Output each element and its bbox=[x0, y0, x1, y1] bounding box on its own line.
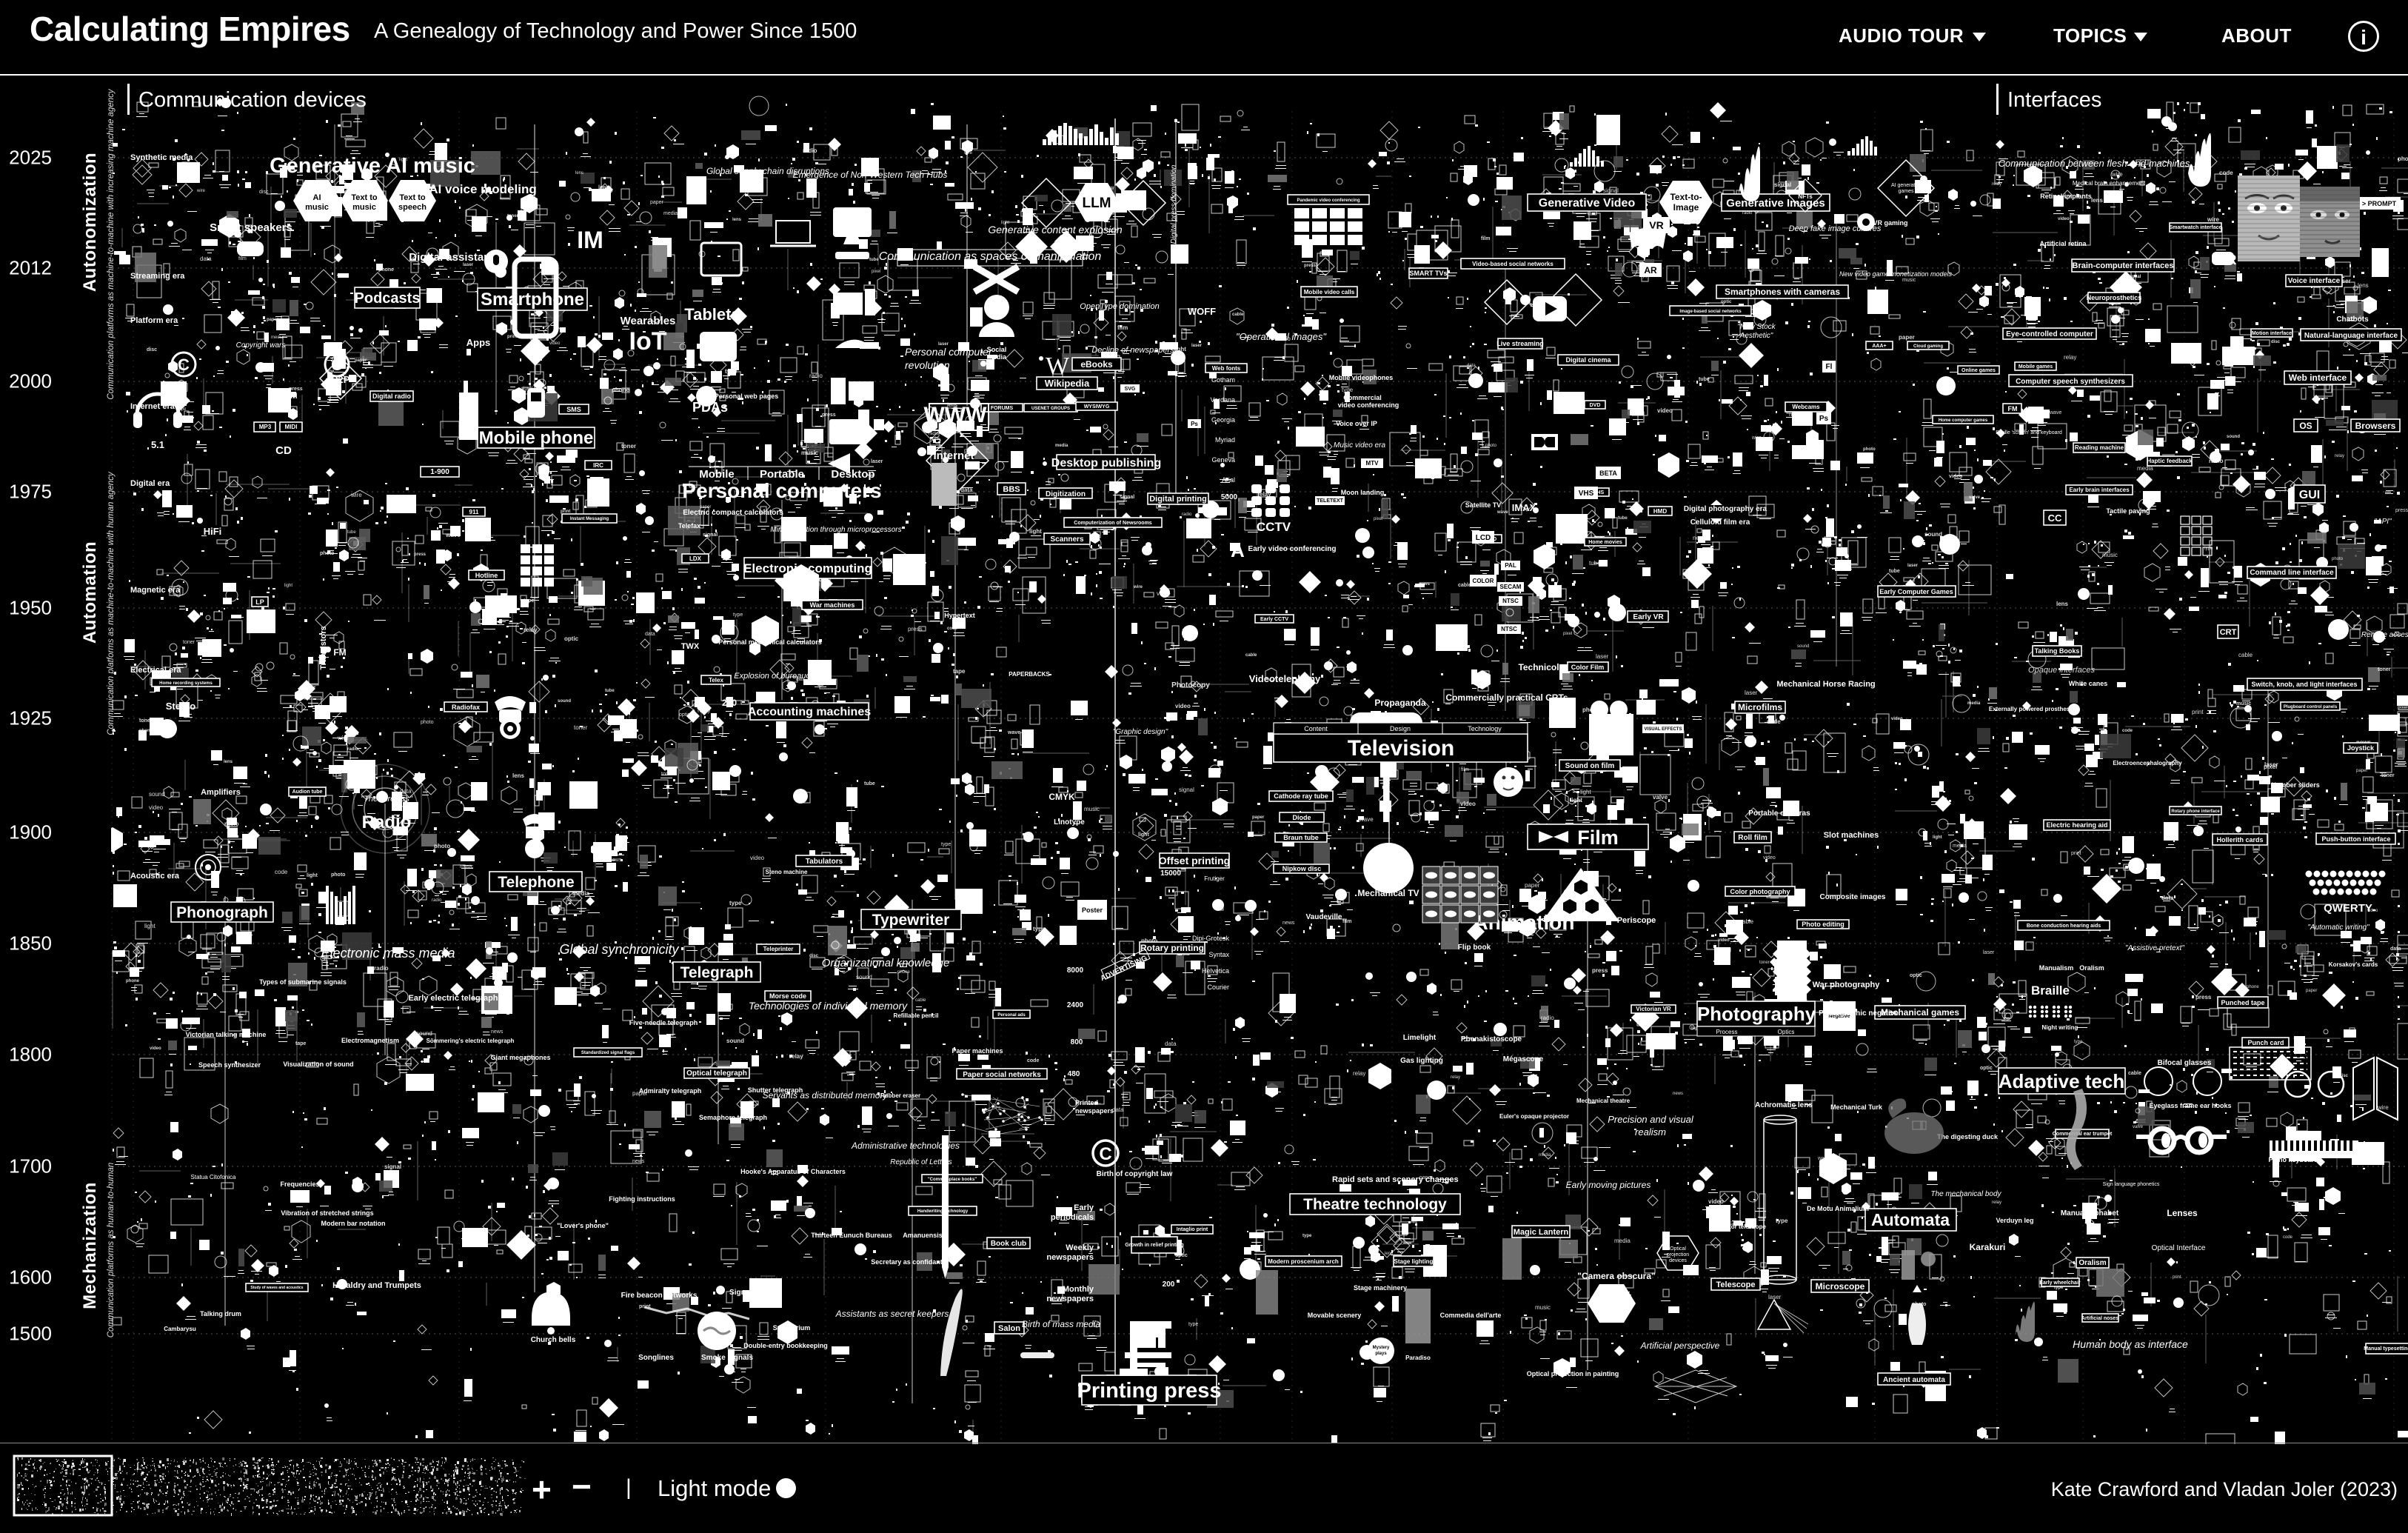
svg-text:Flip book: Flip book bbox=[1458, 943, 1491, 952]
svg-text:code: code bbox=[2219, 170, 2233, 176]
svg-text:paper: paper bbox=[355, 358, 367, 363]
svg-text:Mobile videophones: Mobile videophones bbox=[1329, 374, 1394, 381]
svg-text:Photo editing: Photo editing bbox=[1802, 921, 1845, 928]
svg-text:Personal ads: Personal ads bbox=[997, 1013, 1026, 1018]
svg-text:lens: lens bbox=[575, 171, 583, 176]
svg-text:tape: tape bbox=[295, 1041, 307, 1046]
svg-text:Optical: Optical bbox=[1670, 1246, 1686, 1252]
svg-text:Typewriter: Typewriter bbox=[872, 912, 950, 929]
svg-text:toner: toner bbox=[507, 214, 519, 218]
svg-text:Technicolor: Technicolor bbox=[1518, 662, 1568, 672]
svg-text:laser: laser bbox=[1596, 653, 1609, 660]
svg-text:Copyright wars: Copyright wars bbox=[236, 341, 286, 350]
svg-text:Theatre technology: Theatre technology bbox=[1303, 1196, 1447, 1213]
svg-text:Videotelephony: Videotelephony bbox=[1249, 673, 1321, 684]
svg-text:VHS: VHS bbox=[1579, 490, 1594, 498]
svg-text:Amplifiers: Amplifiers bbox=[201, 788, 241, 797]
svg-text:NFTs: NFTs bbox=[1798, 193, 1813, 200]
svg-text:devices: devices bbox=[1669, 1258, 1687, 1263]
svg-text:Personal computers: Personal computers bbox=[682, 479, 881, 502]
svg-text:Vaudeville: Vaudeville bbox=[1306, 913, 1342, 921]
svg-text:Heraldry and Trumpets: Heraldry and Trumpets bbox=[332, 1281, 421, 1290]
svg-text:911: 911 bbox=[469, 509, 479, 515]
svg-text:paper: paper bbox=[2356, 769, 2367, 773]
svg-text:Generative content explosion: Generative content explosion bbox=[988, 224, 1123, 236]
svg-text:Scanners: Scanners bbox=[1050, 535, 1083, 544]
svg-text:optic: optic bbox=[1721, 300, 1732, 304]
svg-text:press: press bbox=[2395, 508, 2408, 513]
svg-text:"Commonplace books": "Commonplace books" bbox=[928, 1178, 977, 1182]
svg-text:Manualism: Manualism bbox=[2039, 964, 2074, 972]
svg-text:phone: phone bbox=[2398, 156, 2408, 162]
svg-text:type: type bbox=[941, 842, 951, 847]
svg-text:music: music bbox=[801, 450, 819, 456]
svg-text:video: video bbox=[1657, 407, 1673, 414]
svg-text:"Lover's phone": "Lover's phone" bbox=[557, 1222, 609, 1229]
svg-text:cable: cable bbox=[2238, 652, 2253, 658]
svg-text:type: type bbox=[2074, 1040, 2083, 1044]
svg-text:Semaphore telegraph: Semaphore telegraph bbox=[699, 1114, 767, 1121]
svg-text:PAPERBACKS: PAPERBACKS bbox=[1009, 671, 1050, 678]
svg-text:Early electric telegraph: Early electric telegraph bbox=[408, 994, 498, 1003]
svg-text:paper: paper bbox=[1525, 882, 1540, 889]
svg-text:video: video bbox=[2058, 217, 2070, 221]
svg-text:valve: valve bbox=[2133, 1125, 2144, 1129]
svg-text:Web fonts: Web fonts bbox=[1212, 365, 1241, 372]
svg-text:laser: laser bbox=[871, 459, 883, 464]
svg-text:sound: sound bbox=[558, 699, 571, 704]
svg-text:toner: toner bbox=[2378, 667, 2391, 672]
svg-text:5000: 5000 bbox=[1221, 493, 1238, 501]
svg-text:periodicals: periodicals bbox=[1051, 1213, 1094, 1222]
svg-text:radio: radio bbox=[1541, 1015, 1554, 1021]
svg-text:pixel: pixel bbox=[2398, 706, 2408, 710]
svg-text:Digital press domination: Digital press domination bbox=[1170, 164, 1178, 244]
svg-text:DVD: DVD bbox=[1590, 403, 1601, 408]
svg-text:laser: laser bbox=[1983, 950, 1995, 955]
svg-text:Night writing: Night writing bbox=[2042, 1024, 2078, 1031]
svg-text:Hooke's Apparatus of Character: Hooke's Apparatus of Characters bbox=[740, 1168, 846, 1175]
svg-text:Early video conferencing: Early video conferencing bbox=[1248, 545, 1337, 553]
svg-text:Personal computer: Personal computer bbox=[905, 346, 993, 358]
svg-text:Visualization of sound: Visualization of sound bbox=[283, 1061, 353, 1068]
svg-text:Organizational knowledge: Organizational knowledge bbox=[822, 957, 950, 969]
svg-text:Oralism: Oralism bbox=[2078, 1259, 2106, 1267]
svg-text:data: data bbox=[1165, 1041, 1177, 1047]
svg-text:Standardized signal flags: Standardized signal flags bbox=[581, 1051, 635, 1055]
svg-text:MTV: MTV bbox=[1366, 460, 1379, 467]
svg-text:Medical brain enhancement: Medical brain enhancement bbox=[2073, 180, 2146, 187]
svg-text:sound: sound bbox=[416, 1030, 432, 1037]
svg-text:Smart speakers: Smart speakers bbox=[210, 221, 292, 234]
svg-text:A: A bbox=[1231, 539, 1245, 561]
svg-text:phone: phone bbox=[897, 970, 910, 975]
svg-text:Five-needle telegraph: Five-needle telegraph bbox=[629, 1019, 698, 1026]
svg-text:Generative Video: Generative Video bbox=[1539, 197, 1636, 210]
svg-text:Braille 'screen' and keyboard: Braille 'screen' and keyboard bbox=[1996, 430, 2062, 435]
svg-text:photo: photo bbox=[1485, 444, 1497, 448]
svg-text:"Camera obscura": "Camera obscura" bbox=[1577, 1271, 1655, 1281]
svg-text:radio: radio bbox=[224, 821, 239, 827]
svg-text:news: news bbox=[1282, 921, 1295, 926]
svg-text:PDAs: PDAs bbox=[692, 400, 728, 415]
svg-text:CC: CC bbox=[2048, 512, 2062, 524]
svg-text:news: news bbox=[1673, 1092, 1683, 1096]
svg-text:video: video bbox=[1891, 717, 1903, 721]
svg-text:Portable: Portable bbox=[760, 468, 804, 481]
svg-text:Chatbots: Chatbots bbox=[2336, 315, 2369, 324]
svg-text:press: press bbox=[908, 626, 923, 632]
svg-text:Ps: Ps bbox=[1191, 421, 1198, 427]
svg-text:media: media bbox=[1539, 1153, 1551, 1158]
svg-text:Intaglio print: Intaglio print bbox=[1177, 1227, 1208, 1232]
svg-text:Double-entry bookkeeping: Double-entry bookkeeping bbox=[743, 1342, 828, 1349]
svg-text:Radiofax: Radiofax bbox=[452, 704, 480, 711]
svg-text:Eyeglass frame ear hooks: Eyeglass frame ear hooks bbox=[2149, 1102, 2231, 1109]
svg-text:Emergence of Non-Western Tech: Emergence of Non-Western Tech Hubs bbox=[793, 170, 948, 180]
svg-text:Acoustic era: Acoustic era bbox=[130, 872, 180, 881]
svg-text:VR gaming: VR gaming bbox=[1873, 219, 1907, 227]
svg-text:Commercially practical CRTs: Commercially practical CRTs bbox=[1445, 692, 1568, 703]
svg-text:Arial: Arial bbox=[1222, 476, 1235, 484]
svg-text:Magnetic era: Magnetic era bbox=[130, 586, 181, 595]
svg-text:video: video bbox=[1175, 703, 1191, 709]
svg-text:Synthetic media: Synthetic media bbox=[130, 153, 193, 162]
svg-text:FM: FM bbox=[2008, 405, 2018, 413]
svg-text:Personal mechanical calculator: Personal mechanical calculators bbox=[718, 638, 822, 646]
svg-text:Optical Interface: Optical Interface bbox=[2152, 1244, 2206, 1252]
svg-text:Euler's opaque projector: Euler's opaque projector bbox=[1499, 1113, 1569, 1120]
svg-text:Internet: Internet bbox=[933, 450, 974, 462]
svg-text:light: light bbox=[307, 873, 318, 878]
svg-text:data: data bbox=[2390, 946, 2401, 952]
svg-text:Mobile games: Mobile games bbox=[2019, 364, 2053, 370]
svg-text:signal: signal bbox=[2128, 275, 2141, 279]
svg-text:Salon: Salon bbox=[998, 1324, 1020, 1333]
svg-text:Printed: Printed bbox=[1075, 1099, 1098, 1106]
svg-text:Helvetica: Helvetica bbox=[1202, 967, 1229, 975]
svg-text:Plugboard control panels: Plugboard control panels bbox=[2284, 705, 2338, 709]
svg-text:CMYK: CMYK bbox=[1049, 792, 1075, 802]
svg-text:radio: radio bbox=[929, 432, 939, 436]
svg-text:Modern bar notation: Modern bar notation bbox=[321, 1220, 386, 1227]
svg-text:Process: Process bbox=[1716, 1029, 1738, 1035]
svg-text:wire: wire bbox=[2207, 216, 2220, 223]
svg-text:Transistors: Transistors bbox=[319, 626, 328, 669]
svg-text:Satellite TV: Satellite TV bbox=[1465, 501, 1502, 509]
svg-text:signal: signal bbox=[1120, 495, 1134, 500]
svg-text:radio: radio bbox=[1742, 211, 1753, 216]
svg-text:cable: cable bbox=[1245, 653, 1257, 658]
svg-text:media: media bbox=[1055, 444, 1068, 448]
svg-text:code: code bbox=[2283, 1235, 2293, 1240]
svg-text:Braun tube: Braun tube bbox=[1283, 834, 1319, 841]
svg-text:DRM: DRM bbox=[278, 392, 297, 401]
svg-text:photo: photo bbox=[331, 872, 345, 878]
svg-text:photo: photo bbox=[1863, 447, 1876, 452]
svg-text:Externally powered prostheses: Externally powered prostheses bbox=[1989, 706, 2077, 712]
svg-text:cable: cable bbox=[1232, 313, 1244, 317]
svg-text:Voice over IP: Voice over IP bbox=[1336, 420, 1377, 427]
svg-text:Early moving pictures: Early moving pictures bbox=[1566, 1180, 1651, 1190]
svg-text:IRC: IRC bbox=[593, 462, 603, 469]
svg-text:Artificial perspective: Artificial perspective bbox=[1640, 1340, 1720, 1351]
svg-text:video conferencing: video conferencing bbox=[1338, 401, 1399, 409]
svg-text:Vibration of stretched strings: Vibration of stretched strings bbox=[281, 1209, 373, 1217]
svg-text:Communication between flesh an: Communication between flesh and machines bbox=[1999, 158, 2190, 169]
svg-text:light: light bbox=[1570, 797, 1582, 804]
svg-text:CCTV: CCTV bbox=[1257, 520, 1291, 534]
svg-text:light: light bbox=[144, 923, 155, 929]
svg-text:"Graphic design": "Graphic design" bbox=[1113, 728, 1168, 736]
svg-text:data: data bbox=[400, 788, 412, 795]
svg-text:Courier: Courier bbox=[1207, 983, 1229, 991]
svg-text:toner: toner bbox=[1759, 961, 1770, 965]
svg-text:BETA: BETA bbox=[1599, 470, 1617, 477]
svg-text:wire: wire bbox=[1751, 435, 1762, 441]
svg-text:Bifocal glasses: Bifocal glasses bbox=[2158, 1059, 2212, 1067]
svg-text:Slot machines: Slot machines bbox=[1824, 831, 1879, 840]
svg-text:Early Computer Games: Early Computer Games bbox=[1879, 588, 1953, 595]
svg-text:relay: relay bbox=[2064, 354, 2076, 361]
svg-text:data: data bbox=[200, 255, 212, 262]
svg-text:relay: relay bbox=[1451, 1075, 1460, 1080]
svg-text:newspapers: newspapers bbox=[1075, 1107, 1114, 1115]
svg-text:Music video era: Music video era bbox=[1334, 441, 1385, 450]
svg-text:disc: disc bbox=[259, 190, 269, 195]
svg-text:Gas lighting: Gas lighting bbox=[1400, 1057, 1443, 1065]
svg-text:Mobile: Mobile bbox=[699, 468, 735, 481]
svg-text:relay: relay bbox=[2335, 454, 2344, 458]
svg-text:Natural-language interface: Natural-language interface bbox=[2304, 332, 2398, 340]
svg-text:press: press bbox=[289, 387, 303, 392]
svg-text:optic: optic bbox=[1980, 1066, 1993, 1071]
svg-text:toner: toner bbox=[183, 640, 195, 645]
svg-text:print: print bbox=[2071, 851, 2081, 856]
svg-text:Monthly: Monthly bbox=[1063, 1285, 1094, 1294]
svg-text:Electrical era: Electrical era bbox=[130, 666, 181, 675]
svg-text:radio: radio bbox=[347, 747, 358, 752]
svg-text:video: video bbox=[750, 855, 765, 861]
svg-text:video: video bbox=[1949, 474, 1962, 479]
svg-text:MIDI: MIDI bbox=[285, 424, 298, 430]
svg-text:Telex: Telex bbox=[709, 677, 723, 684]
svg-text:press: press bbox=[414, 552, 427, 557]
svg-text:wire: wire bbox=[350, 492, 362, 498]
svg-text:W: W bbox=[1046, 353, 1070, 380]
svg-text:Birth of mass media: Birth of mass media bbox=[1022, 1319, 1100, 1329]
svg-text:Statua Citofonica: Statua Citofonica bbox=[191, 1174, 236, 1180]
svg-text:C: C bbox=[178, 355, 190, 374]
svg-text:tube: tube bbox=[869, 258, 879, 262]
svg-text:Tactile paving: Tactile paving bbox=[2106, 507, 2150, 515]
svg-text:Frutiger: Frutiger bbox=[1204, 875, 1225, 882]
svg-text:phone: phone bbox=[612, 387, 630, 393]
svg-text:Victorian talking machine: Victorian talking machine bbox=[186, 1031, 267, 1038]
svg-text:print: print bbox=[2173, 1275, 2181, 1280]
svg-text:video: video bbox=[549, 341, 561, 346]
svg-text:Number sliders: Number sliders bbox=[2271, 781, 2320, 789]
svg-text:Poster: Poster bbox=[1082, 906, 1103, 914]
svg-text:laser: laser bbox=[1745, 689, 1758, 696]
svg-text:tube: tube bbox=[1699, 377, 1710, 382]
svg-text:music: music bbox=[1535, 1304, 1551, 1311]
svg-text:> PROMPT: > PROMPT bbox=[2362, 200, 2397, 207]
svg-text:Electric hearing aid: Electric hearing aid bbox=[2046, 821, 2107, 829]
svg-text:Online games: Online games bbox=[1961, 368, 1996, 373]
svg-text:Rapid sets and scenery changes: Rapid sets and scenery changes bbox=[1332, 1175, 1459, 1184]
svg-text:Ps: Ps bbox=[1819, 415, 1829, 423]
svg-text:Talking Books: Talking Books bbox=[2035, 647, 2080, 655]
svg-text:AR: AR bbox=[1644, 265, 1657, 275]
svg-text:Adaptive tech: Adaptive tech bbox=[1999, 1070, 2125, 1092]
svg-text:Smartphones with cameras: Smartphones with cameras bbox=[1725, 287, 1840, 297]
svg-text:Electroencephalography: Electroencephalography bbox=[2113, 760, 2182, 766]
svg-text:disc: disc bbox=[2271, 340, 2281, 344]
svg-text:Movable scenery: Movable scenery bbox=[1308, 1312, 1362, 1319]
svg-text:VISUAL EFFECTS: VISUAL EFFECTS bbox=[1645, 727, 1682, 732]
svg-text:Ancient automata: Ancient automata bbox=[1883, 1376, 1945, 1384]
svg-text:valve: valve bbox=[1653, 794, 1668, 801]
svg-text:Karakuri: Karakuri bbox=[1970, 1242, 2006, 1252]
svg-text:laser: laser bbox=[2264, 761, 2278, 768]
svg-text:SMART TVs: SMART TVs bbox=[1409, 270, 1447, 277]
svg-text:film: film bbox=[1481, 236, 1490, 241]
svg-text:paper: paper bbox=[1899, 334, 1915, 341]
svg-text:Thirteen Eunuch Bureaus: Thirteen Eunuch Bureaus bbox=[811, 1232, 892, 1239]
svg-text:Verduyn leg: Verduyn leg bbox=[1996, 1217, 2033, 1224]
svg-text:Georgia: Georgia bbox=[1211, 416, 1235, 424]
svg-text:War machines: War machines bbox=[810, 601, 855, 609]
svg-text:radio: radio bbox=[1182, 512, 1192, 517]
svg-text:Composite images: Composite images bbox=[1820, 893, 1886, 901]
svg-text:wave: wave bbox=[445, 532, 461, 538]
svg-text:phone: phone bbox=[378, 267, 394, 273]
svg-text:Retinal implants: Retinal implants bbox=[2040, 193, 2092, 200]
svg-text:tube: tube bbox=[605, 689, 615, 693]
svg-text:Steno machine: Steno machine bbox=[766, 869, 808, 875]
svg-text:LCD: LCD bbox=[1476, 534, 1491, 542]
svg-text:toner: toner bbox=[139, 718, 153, 724]
svg-text:Text to: Text to bbox=[351, 193, 378, 202]
svg-text:pixel: pixel bbox=[1563, 632, 1572, 636]
svg-text:Social: Social bbox=[987, 346, 1007, 353]
svg-text:Eye-controlled computer: Eye-controlled computer bbox=[2006, 330, 2093, 338]
svg-text:media: media bbox=[987, 353, 1007, 361]
svg-text:Paper machines: Paper machines bbox=[952, 1047, 1003, 1055]
svg-text:Opaque interfaces: Opaque interfaces bbox=[2028, 666, 2095, 675]
svg-text:NTSC: NTSC bbox=[1501, 626, 1517, 632]
svg-text:Smartphone: Smartphone bbox=[481, 290, 584, 310]
svg-text:wire: wire bbox=[1133, 585, 1143, 590]
svg-text:Video-based social networks: Video-based social networks bbox=[1472, 261, 1554, 267]
svg-text:Precision and visual: Precision and visual bbox=[1608, 1114, 1694, 1125]
svg-text:Rotary printing: Rotary printing bbox=[1140, 943, 1204, 953]
svg-text:lens: lens bbox=[598, 185, 609, 190]
svg-text:Cloud gaming: Cloud gaming bbox=[1913, 344, 1943, 349]
svg-text:code: code bbox=[275, 869, 288, 875]
svg-text:Hollerith cards: Hollerith cards bbox=[2216, 836, 2263, 844]
svg-text:cable: cable bbox=[915, 998, 926, 1003]
svg-text:paper: paper bbox=[1252, 815, 1265, 820]
svg-text:AI: AI bbox=[313, 193, 321, 202]
svg-text:Home computer games: Home computer games bbox=[1939, 418, 1988, 423]
svg-text:sound: sound bbox=[726, 1038, 744, 1044]
svg-text:tube: tube bbox=[1889, 569, 1900, 574]
svg-text:Motion interface: Motion interface bbox=[2252, 331, 2292, 336]
svg-text:Desktop publishing: Desktop publishing bbox=[1051, 457, 1161, 470]
svg-text:code: code bbox=[947, 627, 958, 631]
svg-text:Automata: Automata bbox=[1871, 1210, 1950, 1229]
svg-text:Linotype: Linotype bbox=[1054, 818, 1085, 826]
svg-text:Book club: Book club bbox=[991, 1240, 1026, 1248]
svg-text:Home movies: Home movies bbox=[1588, 540, 1622, 545]
svg-text:OpenType domination: OpenType domination bbox=[1080, 302, 1159, 311]
svg-text:wire: wire bbox=[196, 189, 206, 193]
svg-text:Commercial: Commercial bbox=[1343, 394, 1382, 401]
svg-text:Propaganda: Propaganda bbox=[1374, 698, 1426, 708]
svg-text:VR: VR bbox=[2218, 253, 2236, 267]
svg-text:Haptic feedback: Haptic feedback bbox=[2147, 458, 2193, 464]
svg-text:relay: relay bbox=[1353, 1070, 1365, 1077]
svg-text:relay: relay bbox=[1992, 1200, 2001, 1205]
svg-text:SVG: SVG bbox=[1125, 387, 1136, 392]
svg-text:Hypertext: Hypertext bbox=[944, 612, 975, 619]
svg-text:optic: optic bbox=[564, 635, 579, 642]
svg-text:Electronic mass media: Electronic mass media bbox=[321, 946, 455, 961]
svg-text:FM: FM bbox=[333, 647, 346, 658]
svg-text:film: film bbox=[238, 256, 247, 261]
svg-text:Smoke signals: Smoke signals bbox=[701, 1354, 753, 1362]
svg-text:C: C bbox=[331, 355, 343, 374]
svg-text:480: 480 bbox=[1068, 1070, 1080, 1078]
svg-text:Punch card: Punch card bbox=[2247, 1039, 2284, 1046]
svg-text:press: press bbox=[1304, 264, 1317, 268]
svg-text:C: C bbox=[1099, 1144, 1111, 1164]
svg-text:Telefax: Telefax bbox=[678, 522, 700, 530]
svg-text:Assistants as secret keepers: Assistants as secret keepers bbox=[835, 1309, 949, 1319]
svg-text:Early VR: Early VR bbox=[1633, 613, 1664, 621]
svg-text:FORUMS: FORUMS bbox=[991, 406, 1014, 411]
svg-text:Korsakov's cards: Korsakov's cards bbox=[2329, 961, 2378, 968]
svg-text:AI voice modeling: AI voice modeling bbox=[429, 182, 536, 196]
svg-text:WWW: WWW bbox=[924, 403, 988, 427]
svg-text:phone: phone bbox=[126, 979, 140, 983]
svg-text:Brain-computer interfaces: Brain-computer interfaces bbox=[2073, 261, 2174, 270]
svg-text:Achromatic lens: Achromatic lens bbox=[1755, 1101, 1813, 1109]
svg-text:2400: 2400 bbox=[1067, 1001, 1084, 1009]
svg-text:Technologies of individual mem: Technologies of individual memory bbox=[749, 1000, 908, 1012]
svg-text:light: light bbox=[1933, 835, 1942, 840]
svg-text:Portable cameras: Portable cameras bbox=[1748, 809, 1810, 818]
svg-text:NTSC: NTSC bbox=[1502, 598, 1519, 604]
svg-text:Color Film: Color Film bbox=[1571, 664, 1605, 671]
svg-text:De Motu Animalium: De Motu Animalium bbox=[1807, 1205, 1869, 1212]
svg-text:film: film bbox=[1342, 919, 1351, 924]
svg-text:video: video bbox=[1763, 855, 1776, 861]
svg-text:Paradiso: Paradiso bbox=[1405, 1355, 1431, 1361]
svg-text:Stage machinery: Stage machinery bbox=[1354, 1284, 1407, 1292]
svg-text:wave: wave bbox=[1359, 816, 1374, 823]
svg-text:CRT: CRT bbox=[2220, 628, 2237, 637]
svg-text:SMS: SMS bbox=[566, 406, 581, 413]
svg-text:music: music bbox=[305, 203, 329, 212]
svg-text:sound: sound bbox=[1924, 531, 1942, 538]
svg-text:Optical projection in painting: Optical projection in painting bbox=[1527, 1370, 1619, 1377]
svg-text:light: light bbox=[1138, 832, 1149, 838]
svg-text:Early wheelchair: Early wheelchair bbox=[2039, 1280, 2081, 1286]
svg-text:Speech synthesizer: Speech synthesizer bbox=[198, 1061, 261, 1069]
